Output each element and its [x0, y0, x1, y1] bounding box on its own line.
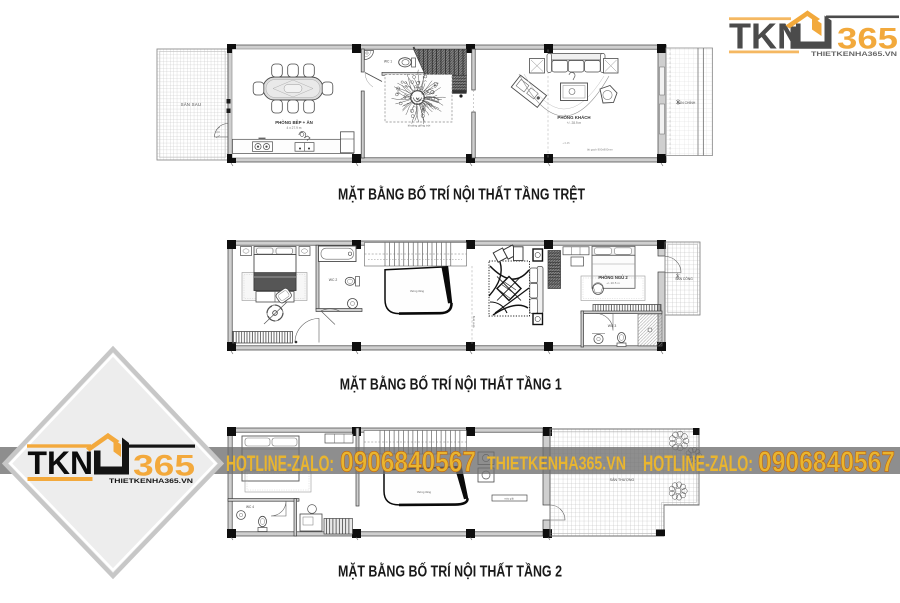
- svg-text:+ 0.45: + 0.45: [562, 141, 570, 145]
- svg-text:máy giặt: máy giặt: [504, 497, 514, 501]
- svg-text:THIETKENHA365.VN: THIETKENHA365.VN: [811, 51, 898, 58]
- svg-text:+/- 28.9 m: +/- 28.9 m: [567, 121, 582, 125]
- svg-text:SÂN SAU: SÂN SAU: [181, 102, 201, 107]
- svg-text:hành lang: hành lang: [472, 315, 476, 328]
- svg-text:lát gạch 800x800mm: lát gạch 800x800mm: [587, 148, 614, 152]
- svg-text:THIETKENHA365.VN: THIETKENHA365.VN: [109, 478, 194, 485]
- svg-text:PHÒNG NGỦ 2: PHÒNG NGỦ 2: [598, 275, 628, 280]
- svg-text:PHÒNG BỄP + ĂN: PHÒNG BỄP + ĂN: [275, 120, 313, 125]
- svg-text:MẶT BẰNG BỐ TRÍ NỘI THẤT TẦNG: MẶT BẰNG BỐ TRÍ NỘI THẤT TẦNG 2: [338, 561, 562, 581]
- svg-text:THIETKENHA365.VN: THIETKENHA365.VN: [487, 454, 626, 474]
- svg-text:MẶT BẰNG BỐ TRÍ NỘI THẤT TẦNG: MẶT BẰNG BỐ TRÍ NỘI THẤT TẦNG TRỆT: [338, 184, 585, 204]
- svg-text:WC 2: WC 2: [329, 278, 338, 282]
- svg-text:MẶT BẰNG BỐ TRÍ NỘI THẤT TẦNG: MẶT BẰNG BỐ TRÍ NỘI THẤT TẦNG 1: [340, 374, 562, 394]
- svg-text:HOTLINE-ZALO:: HOTLINE-ZALO:: [643, 451, 753, 476]
- svg-text:thông tầng: thông tầng: [410, 289, 425, 293]
- svg-text:WC 4: WC 4: [246, 505, 254, 509]
- svg-text:SÂN THƯỢNG: SÂN THƯỢNG: [610, 478, 635, 482]
- svg-text:WC 1: WC 1: [384, 60, 392, 64]
- svg-text:khoảng giếng trời: khoảng giếng trời: [408, 124, 431, 128]
- svg-text:TKN: TKN: [28, 445, 94, 481]
- svg-text:0906840567: 0906840567: [758, 447, 895, 479]
- svg-text:SÂN CHÍNH: SÂN CHÍNH: [677, 101, 696, 105]
- svg-text:0906840567: 0906840567: [340, 447, 476, 479]
- svg-text:PHÒNG KHÁCH: PHÒNG KHÁCH: [557, 115, 590, 120]
- svg-text:WC 3: WC 3: [608, 324, 617, 328]
- svg-text:4 x 27.9 m: 4 x 27.9 m: [287, 126, 302, 130]
- svg-text:+/- 20.5 m: +/- 20.5 m: [606, 281, 620, 285]
- svg-text:HOTLINE-ZALO:: HOTLINE-ZALO:: [226, 451, 334, 476]
- svg-text:thông tầng: thông tầng: [417, 490, 432, 494]
